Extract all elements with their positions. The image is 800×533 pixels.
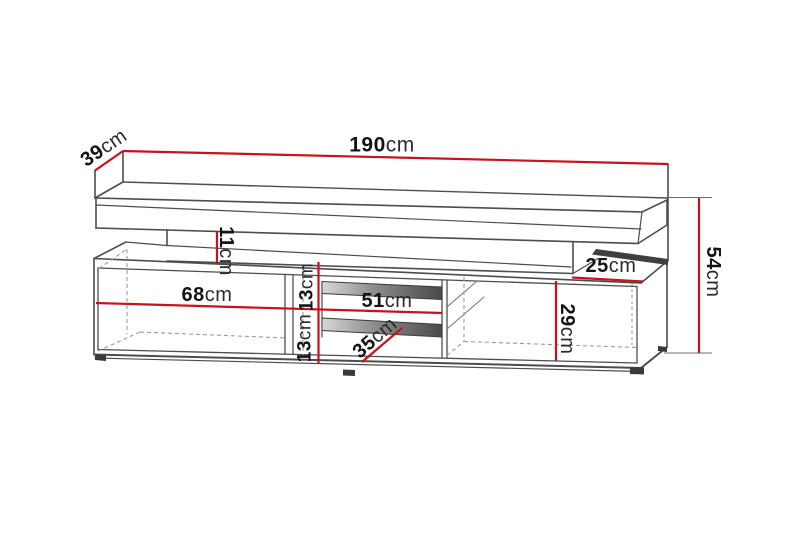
dim-label-right-top-depth: 25cm <box>586 256 637 276</box>
dim-label-gap-height: 11cm <box>216 226 236 276</box>
dim-label-total-height: 54cm <box>703 247 723 298</box>
dim-label-total-width: 190cm <box>349 135 415 156</box>
dim-label-shelf-lower-height: 13cm <box>296 314 315 362</box>
dim-label-right-compartment: 29cm <box>557 304 577 355</box>
foot-back-right <box>658 346 667 352</box>
dim-label-middle-compartment: 51cm <box>362 291 413 311</box>
dim-label-left-compartment: 68cm <box>182 285 233 305</box>
tv-stand-line-drawing <box>0 0 800 533</box>
foot-left <box>95 355 106 362</box>
dim-label-shelf-upper-height: 13cm <box>298 263 317 311</box>
foot-right <box>630 367 644 375</box>
furniture-dimension-diagram: 190cm 39cm 11cm 68cm 13cm 13cm 51cm 35cm… <box>0 0 800 533</box>
foot-middle <box>343 370 355 377</box>
